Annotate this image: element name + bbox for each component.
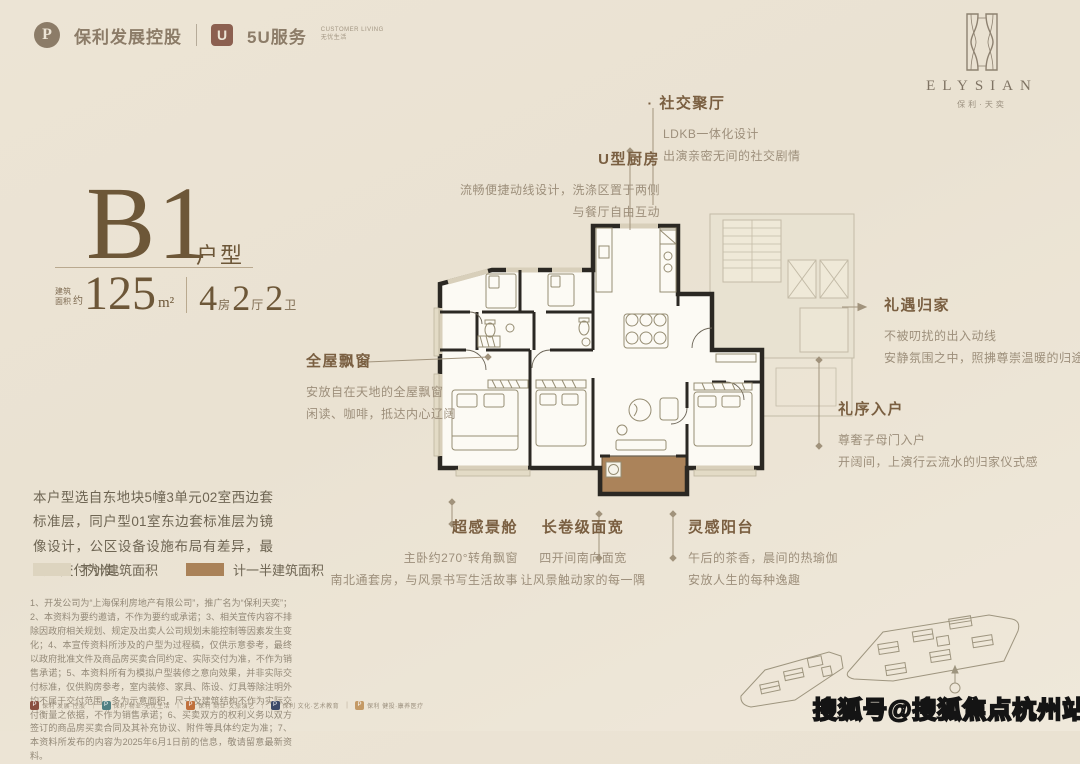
legend-item-excluded: 不计建筑面积 — [33, 560, 158, 579]
annotation-line: 出演亲密无间的社交剧情 — [663, 145, 801, 167]
hall-label: 厅 — [251, 296, 263, 313]
annotation-view-cabin: 超感景舱 主卧约270°转角飘窗 南北通套房，与风景书写生活故事 — [330, 516, 518, 591]
unit-spec-row: 建筑 面积 约 125 m² 4 房 2 厅 2 卫 — [55, 274, 298, 315]
bath-count: 2 — [265, 282, 283, 314]
footer-brand-row: P保利 发展·控股 | P保利 物业·无忧生活 | P保利 商业·文旅演艺 | … — [30, 701, 424, 710]
annotation-u-kitchen: U型厨房 流畅便捷动线设计，洗涤区置于两侧 与餐厅自由互动 — [460, 148, 660, 223]
annotation-balcony-title: 灵感阳台 — [688, 516, 838, 537]
annotation-line: 南北通套房，与风景书写生活故事 — [330, 569, 518, 591]
elysian-emblem-icon — [959, 12, 1005, 72]
bath-label: 卫 — [284, 296, 296, 313]
footer-logo-2-icon: P — [102, 701, 111, 710]
footer-logo-2-label: 保利 物业·无忧生活 — [114, 701, 171, 710]
area-unit: m² — [158, 295, 174, 312]
legend-swatch-brown — [186, 563, 224, 576]
footer-divider: | — [346, 702, 348, 709]
5u-logo-name: 5U服务 — [247, 23, 307, 48]
annotation-frontwidth-title: 长卷级面宽 — [508, 516, 658, 537]
brand-name-cn: 保利·天奕 — [912, 99, 1052, 110]
annotation-line: 开阔间，上演行云流水的归家仪式感 — [838, 451, 1038, 473]
unit-code: B1 — [86, 172, 211, 276]
footer-logo-4-icon: P — [271, 701, 280, 710]
footer-logo-5-icon: P — [355, 701, 364, 710]
annotation-line: 四开间南向面宽 — [508, 547, 658, 569]
5u-sub-en: CUSTOMER LIVING — [321, 27, 384, 35]
poly-logo-icon: P — [34, 22, 60, 48]
annotation-entry-title: 礼序入户 — [838, 398, 1038, 419]
5u-logo-icon: U — [211, 24, 233, 46]
annotation-baywindow-title: 全屋飘窗 — [306, 350, 456, 371]
annotation-balcony: 灵感阳台 午后的茶香，晨间的热瑜伽 安放人生的每种逸趣 — [688, 516, 838, 591]
footer-divider: | — [177, 702, 179, 709]
legend-item-half: 计一半建筑面积 — [186, 560, 324, 579]
room-label: 房 — [218, 296, 230, 313]
annotation-line: 主卧约270°转角飘窗 — [330, 547, 518, 569]
5u-logo-subtitle: CUSTOMER LIVING 无忧生活 — [321, 27, 384, 43]
annotation-front-width: 长卷级面宽 四开间南向面宽 让风景触动家的每一隅 — [508, 516, 658, 591]
floor-plan — [410, 208, 870, 520]
footer-logo-4: P保利 文化·艺术教育 — [271, 701, 340, 710]
footer-logo-3-label: 保利 商业·文旅演艺 — [198, 701, 255, 710]
area-approx: 约 — [73, 292, 83, 307]
footer-logo-3-icon: P — [186, 701, 195, 710]
footer-logo-5-label: 保利 健投·康养医疗 — [367, 701, 424, 710]
annotation-viewcabin-title: 超感景舱 — [330, 516, 518, 537]
legend-label-light: 不计建筑面积 — [80, 560, 158, 579]
header-divider — [196, 24, 197, 46]
annotation-line: 让风景触动家的每一隅 — [508, 569, 658, 591]
hall-count: 2 — [232, 282, 250, 314]
disclaimer-text: 1、开发公司为“上海保利房地产有限公司”，推广名为“保利天奕”；2、本资料为要约… — [30, 597, 292, 764]
annotation-title-text: 社交聚厅 — [659, 95, 725, 112]
plan-legend: 不计建筑面积 计一半建筑面积 — [33, 560, 324, 579]
annotation-line: 午后的茶香，晨间的热瑜伽 — [688, 547, 838, 569]
area-prefix: 建筑 面积 — [55, 287, 71, 307]
annotation-bay-window: 全屋飘窗 安放自在天地的全屋飘窗 闲读、咖啡，抵达内心辽阔 — [306, 350, 456, 425]
unit-type-label: 户型 — [196, 238, 244, 270]
header-logos: P 保利发展控股 U 5U服务 CUSTOMER LIVING 无忧生活 — [34, 22, 384, 48]
footer-logo-1: P保利 发展·控股 — [30, 701, 86, 710]
room-count: 4 — [199, 282, 217, 314]
footer-logo-1-label: 保利 发展·控股 — [42, 701, 86, 710]
annotation-line: 尊奢子母门入户 — [838, 429, 1038, 451]
annotation-social-hall: ▪社交聚厅 LDKB一体化设计 出演亲密无间的社交剧情 — [648, 92, 801, 167]
footer-divider: | — [262, 702, 264, 709]
poly-suffix-text: 发展控股 — [110, 28, 182, 47]
annotation-line: 与餐厅自由互动 — [460, 201, 660, 223]
square-marker-icon: ▪ — [648, 99, 652, 108]
footer-divider: | — [93, 702, 95, 709]
spec-separator — [186, 277, 187, 313]
area-value: 125 — [84, 274, 156, 315]
legend-label-brown: 计一半建筑面积 — [233, 560, 324, 579]
annotation-line: 安静氛围之中，照拂尊崇温暖的归途 — [884, 347, 1080, 369]
annotation-entry: 礼序入户 尊奢子母门入户 开阔间，上演行云流水的归家仪式感 — [838, 398, 1038, 473]
annotation-line: 流畅便捷动线设计，洗涤区置于两侧 — [460, 179, 660, 201]
annotation-homecoming: 礼遇归家 不被叨扰的出入动线 安静氛围之中，照拂尊崇温暖的归途 — [884, 294, 1080, 369]
legend-swatch-light — [33, 563, 71, 576]
annotation-kitchen-title: U型厨房 — [460, 148, 660, 169]
poly-name-text: 保利 — [74, 28, 110, 47]
5u-sub-cn: 无忧生活 — [321, 35, 384, 43]
annotation-homecoming-title: 礼遇归家 — [884, 294, 1080, 315]
poly-logo-name: 保利发展控股 — [74, 23, 182, 48]
watermark-text: 搜狐号@搜狐焦点杭州站 — [813, 690, 1080, 725]
annotation-line: 不被叨扰的出入动线 — [884, 325, 1080, 347]
annotation-line: LDKB一体化设计 — [663, 123, 801, 145]
annotation-line: 闲读、咖啡，抵达内心辽阔 — [306, 403, 456, 425]
annotation-social-title: ▪社交聚厅 — [648, 92, 801, 113]
footer-logo-3: P保利 商业·文旅演艺 — [186, 701, 255, 710]
brand-block: ELYSIAN 保利·天奕 — [912, 12, 1052, 110]
area-prefix-1: 建筑 — [55, 287, 71, 297]
footer-logo-1-icon: P — [30, 701, 39, 710]
footer-logo-2: P保利 物业·无忧生活 — [102, 701, 171, 710]
area-prefix-2: 面积 — [55, 297, 71, 307]
footer-logo-5: P保利 健投·康养医疗 — [355, 701, 424, 710]
footer-logo-4-label: 保利 文化·艺术教育 — [283, 701, 340, 710]
annotation-line: 安放人生的每种逸趣 — [688, 569, 838, 591]
brand-name-en: ELYSIAN — [912, 78, 1052, 95]
annotation-line: 安放自在天地的全屋飘窗 — [306, 381, 456, 403]
